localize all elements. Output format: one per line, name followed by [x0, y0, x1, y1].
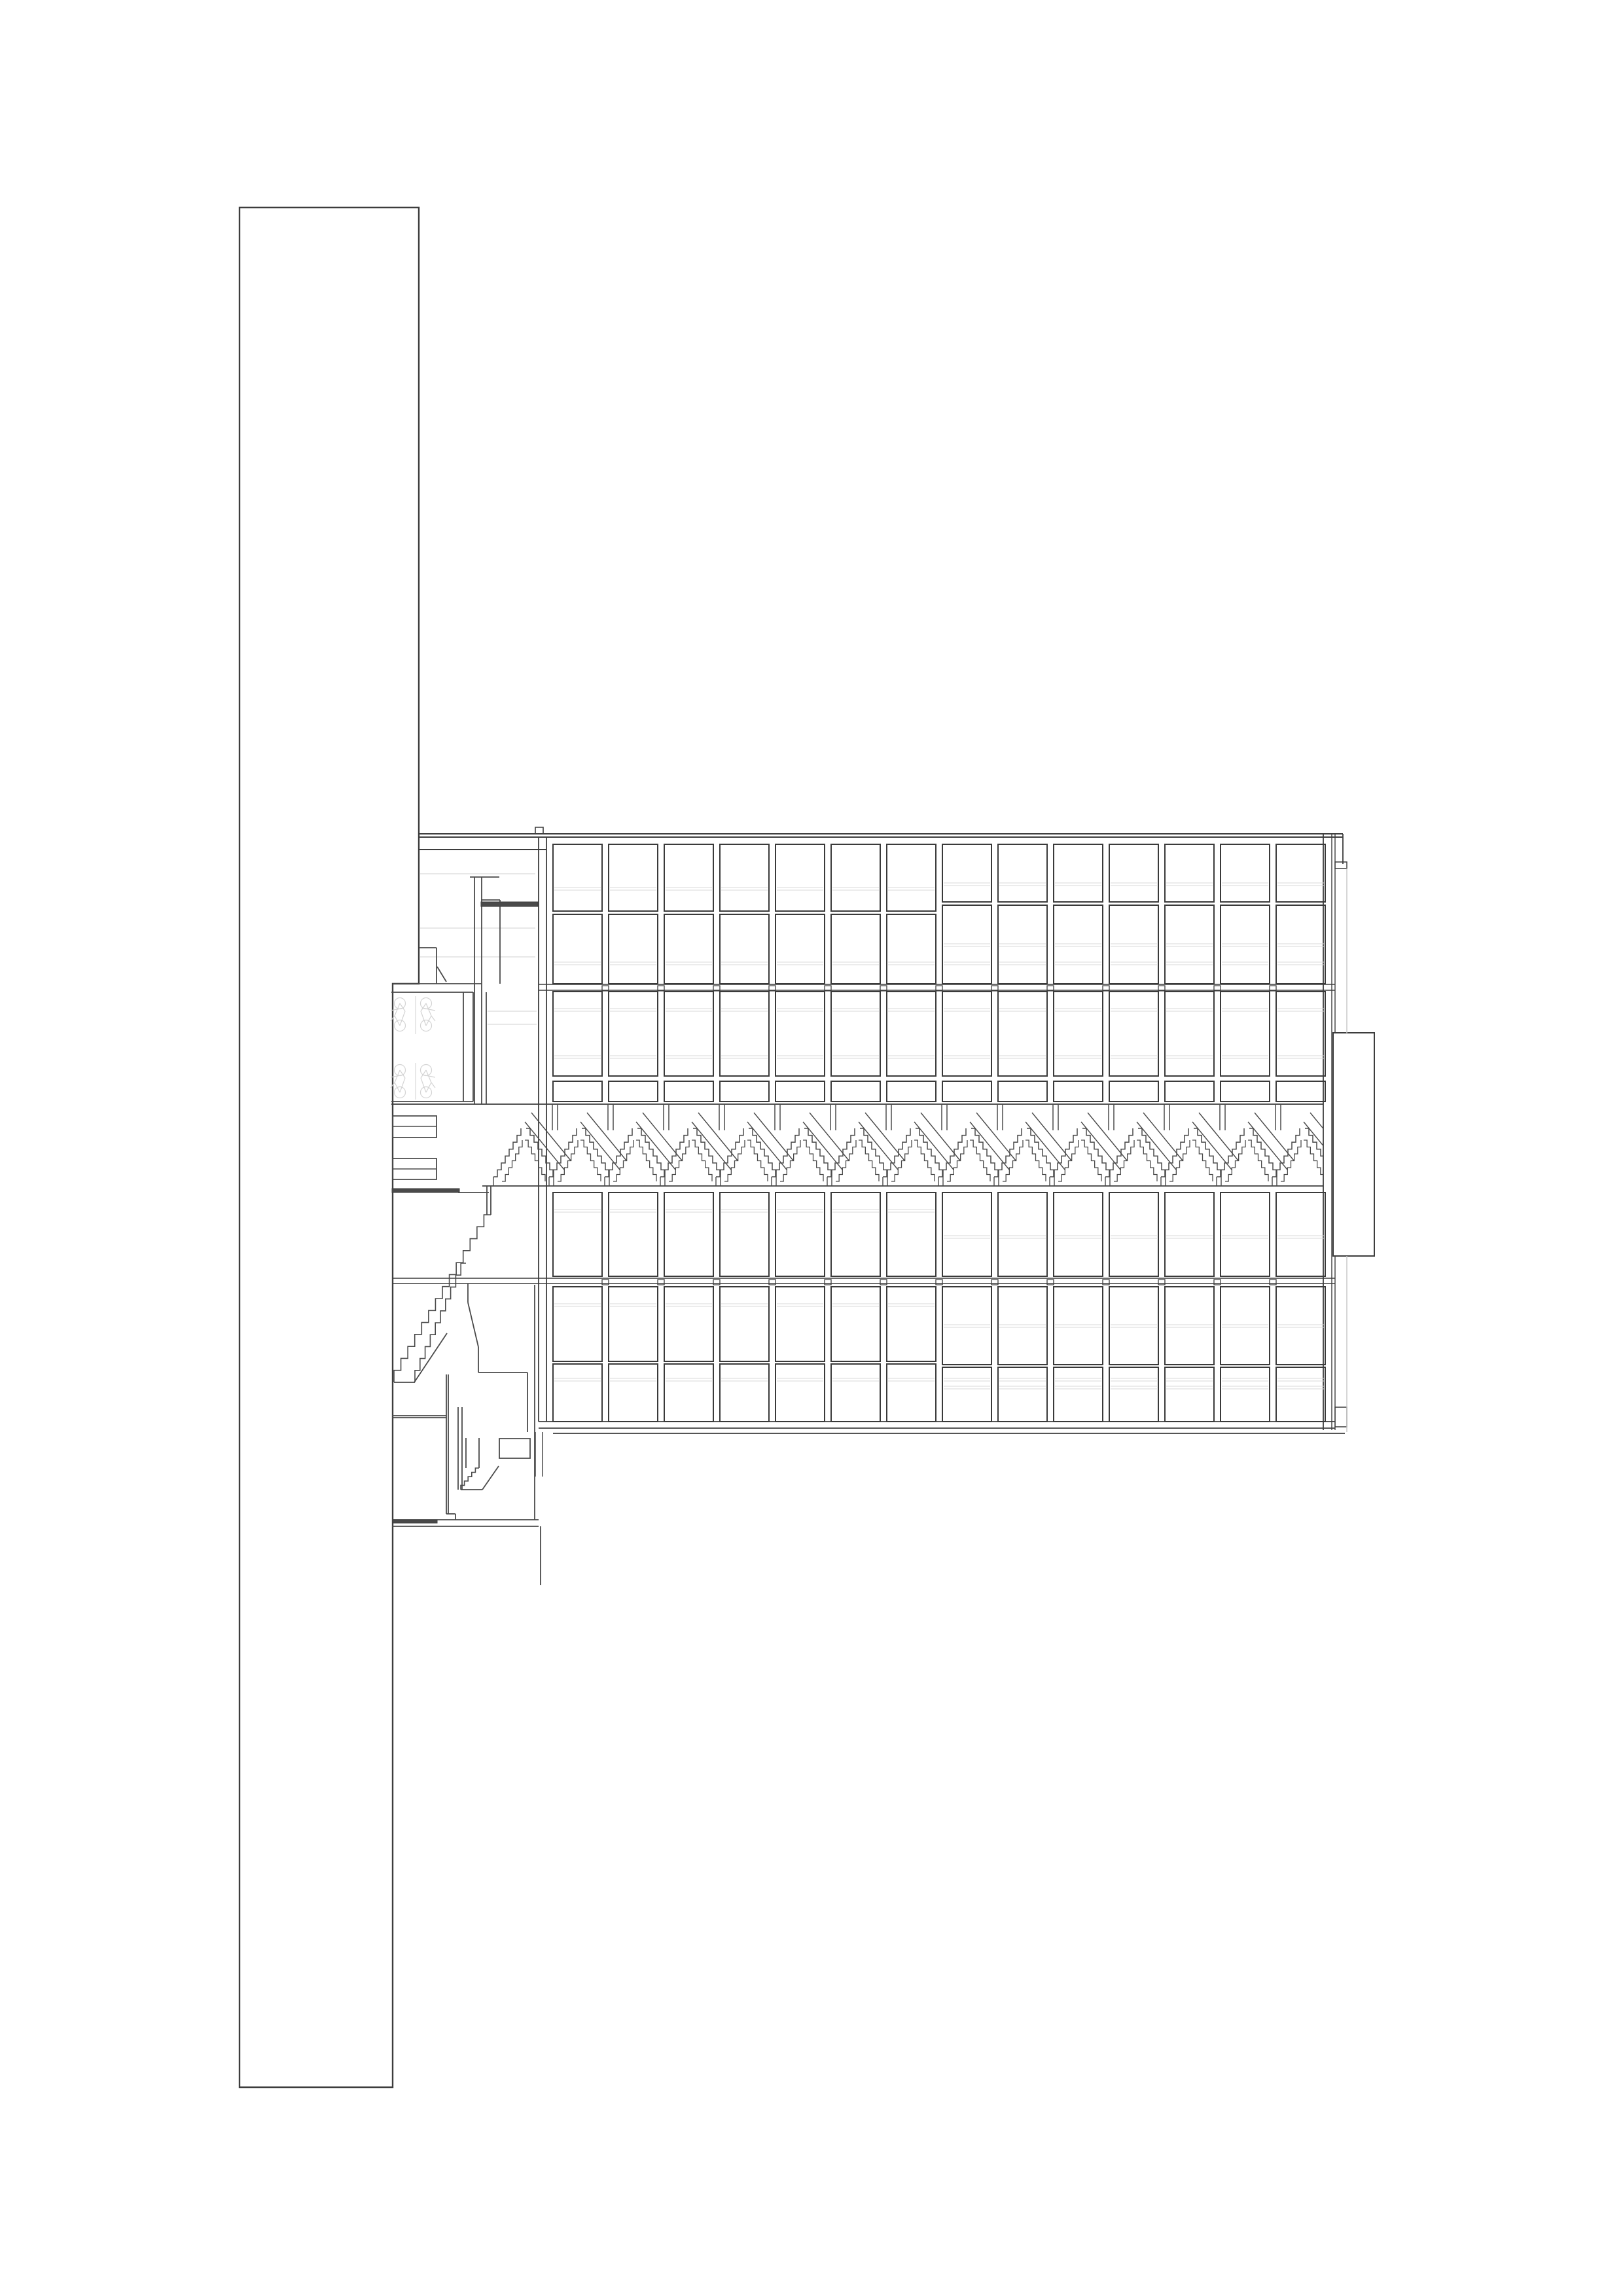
floor-plan-drawing: [0, 0, 1623, 2296]
drawing-sheet: [0, 0, 1623, 2296]
left-bar-building: [240, 207, 419, 2087]
